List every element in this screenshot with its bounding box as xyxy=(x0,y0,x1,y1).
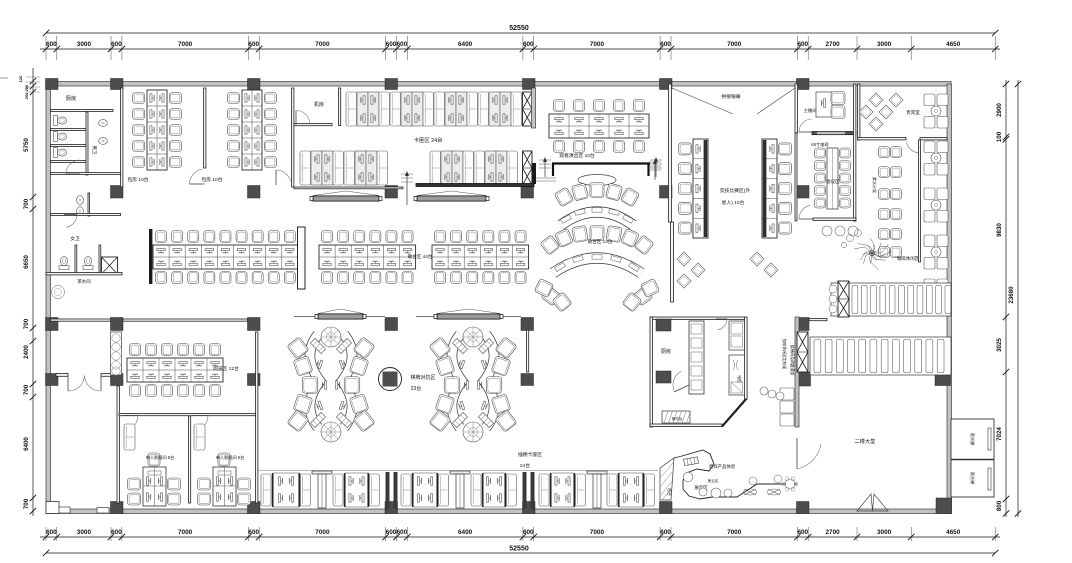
svg-text:竞技比赛区(外: 竞技比赛区(外 xyxy=(720,187,751,194)
svg-text:7000: 7000 xyxy=(727,41,742,48)
svg-text:咖啡休闲区: 咖啡休闲区 xyxy=(897,255,920,262)
svg-text:贵宾室: 贵宾室 xyxy=(906,109,920,116)
svg-text:6650: 6650 xyxy=(23,255,30,269)
svg-text:7000: 7000 xyxy=(178,529,193,536)
svg-text:2400: 2400 xyxy=(23,345,30,359)
svg-text:600: 600 xyxy=(797,529,808,536)
svg-text:600: 600 xyxy=(660,41,671,48)
svg-text:600: 600 xyxy=(797,41,808,48)
svg-text:65寸电视: 65寸电视 xyxy=(811,141,829,148)
svg-text:卡座区 24台: 卡座区 24台 xyxy=(413,136,442,144)
svg-text:800: 800 xyxy=(996,500,1003,511)
svg-text:电柜: 电柜 xyxy=(737,375,742,383)
svg-text:6400: 6400 xyxy=(23,437,30,451)
svg-text:6400: 6400 xyxy=(458,529,473,536)
svg-text:700: 700 xyxy=(23,318,30,329)
svg-text:机房: 机房 xyxy=(314,101,324,108)
svg-text:9830: 9830 xyxy=(996,223,1003,237)
svg-text:700: 700 xyxy=(23,198,30,209)
svg-text:600: 600 xyxy=(386,529,397,536)
svg-text:茶水间: 茶水间 xyxy=(77,278,90,285)
svg-text:600: 600 xyxy=(523,41,534,48)
svg-text:7000: 7000 xyxy=(315,41,330,48)
svg-text:200: 200 xyxy=(24,92,29,99)
svg-text:6400: 6400 xyxy=(458,41,473,48)
svg-text:600: 600 xyxy=(397,529,408,536)
svg-text:4650: 4650 xyxy=(946,529,961,536)
svg-text:3000: 3000 xyxy=(877,529,892,536)
svg-text:600: 600 xyxy=(111,529,122,536)
svg-text:7000: 7000 xyxy=(727,529,742,536)
svg-text:23680: 23680 xyxy=(1008,286,1015,304)
svg-text:包房 10台: 包房 10台 xyxy=(127,176,148,183)
svg-text:包房 10台: 包房 10台 xyxy=(201,176,222,183)
svg-text:会议区: 会议区 xyxy=(826,178,840,185)
svg-text:52550: 52550 xyxy=(509,546,529,553)
svg-text:观光梯: 观光梯 xyxy=(969,472,976,485)
svg-text:散台区 13台: 散台区 13台 xyxy=(588,238,613,245)
svg-text:3000: 3000 xyxy=(877,41,892,48)
svg-text:600: 600 xyxy=(660,529,671,536)
svg-text:600: 600 xyxy=(248,41,259,48)
svg-text:600: 600 xyxy=(248,529,259,536)
svg-text:插佣卡座区: 插佣卡座区 xyxy=(518,451,542,458)
svg-text:阅览区 12台: 阅览区 12台 xyxy=(213,365,239,372)
svg-text:4650: 4650 xyxy=(946,41,961,48)
svg-text:7000: 7000 xyxy=(590,529,605,536)
svg-text:600: 600 xyxy=(523,529,534,536)
svg-text:拼接银幕: 拼接银幕 xyxy=(721,93,740,100)
svg-text:3000: 3000 xyxy=(77,529,92,536)
svg-text:棋牌对抗区: 棋牌对抗区 xyxy=(410,374,435,381)
svg-text:3000: 3000 xyxy=(77,41,92,48)
svg-text:3025: 3025 xyxy=(996,338,1003,352)
svg-text:星人) 10台: 星人) 10台 xyxy=(722,199,745,206)
svg-text:美云区: 美云区 xyxy=(708,478,719,483)
svg-text:二楼大堂: 二楼大堂 xyxy=(855,437,876,445)
svg-text:600: 600 xyxy=(386,41,397,48)
svg-text:5750: 5750 xyxy=(23,138,30,152)
svg-text:吧台: 吧台 xyxy=(667,488,672,496)
svg-text:2700: 2700 xyxy=(825,41,840,48)
svg-text:单人影视间 5台: 单人影视间 5台 xyxy=(216,454,245,461)
svg-text:100: 100 xyxy=(996,131,1003,142)
svg-text:600: 600 xyxy=(46,529,57,536)
svg-text:2700: 2700 xyxy=(825,529,840,536)
svg-text:7000: 7000 xyxy=(178,41,193,48)
svg-text:600: 600 xyxy=(46,41,57,48)
svg-text:24台: 24台 xyxy=(520,462,530,469)
svg-text:女卫: 女卫 xyxy=(70,235,80,242)
svg-text:120: 120 xyxy=(18,75,23,82)
svg-text:52550: 52550 xyxy=(509,25,529,32)
svg-text:咖啡休闲区定制桌: 咖啡休闲区定制桌 xyxy=(782,339,787,370)
svg-text:7000: 7000 xyxy=(590,41,605,48)
svg-text:厨房: 厨房 xyxy=(661,348,671,355)
svg-text:700: 700 xyxy=(23,384,30,395)
svg-text:厨房: 厨房 xyxy=(66,94,76,102)
svg-text:观看演出区 10台: 观看演出区 10台 xyxy=(559,152,595,159)
svg-text:操作台: 操作台 xyxy=(672,416,683,421)
svg-text:观光梯: 观光梯 xyxy=(969,433,976,446)
svg-text:散台区 44台: 散台区 44台 xyxy=(408,253,433,260)
svg-text:7024: 7024 xyxy=(996,427,1003,441)
svg-text:紫水沙发: 紫水沙发 xyxy=(872,177,878,193)
svg-text:280: 280 xyxy=(24,84,29,91)
svg-text:23台: 23台 xyxy=(411,385,422,392)
svg-text:楼梯间及疏散通道: 楼梯间及疏散通道 xyxy=(790,345,795,376)
svg-text:600: 600 xyxy=(397,41,408,48)
svg-text:单人影视间 5台: 单人影视间 5台 xyxy=(146,454,175,461)
svg-text:周样产品体验: 周样产品体验 xyxy=(709,463,736,470)
svg-text:7000: 7000 xyxy=(315,529,330,536)
svg-text:主播间: 主播间 xyxy=(804,107,817,114)
svg-text:700: 700 xyxy=(23,498,30,509)
svg-text:600: 600 xyxy=(111,41,122,48)
svg-text:2900: 2900 xyxy=(996,103,1003,117)
